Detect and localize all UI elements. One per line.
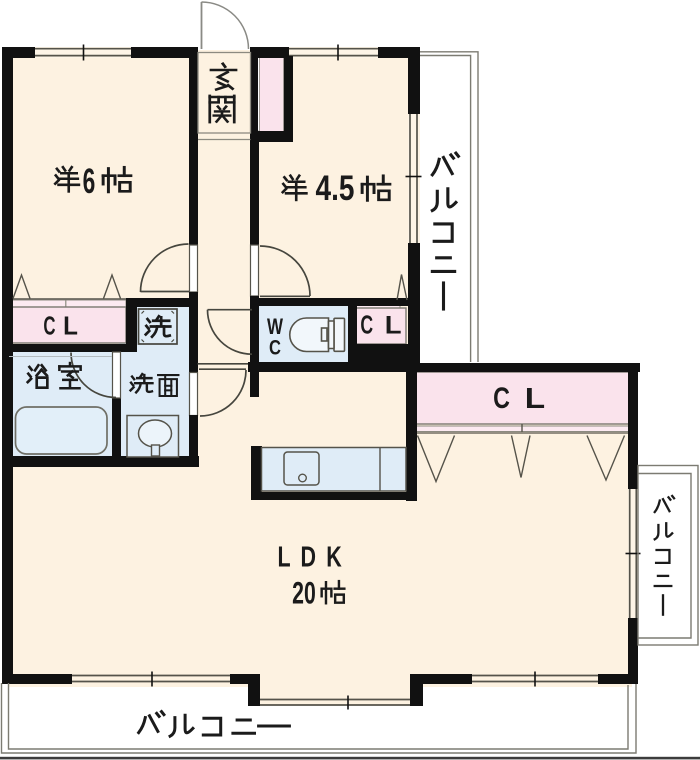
svg-text:C: C	[493, 381, 510, 415]
svg-text:20: 20	[292, 575, 316, 610]
svg-text:L: L	[277, 541, 290, 573]
svg-text:D: D	[300, 541, 315, 573]
svg-text:L: L	[63, 312, 78, 341]
svg-text:4.5: 4.5	[316, 168, 355, 208]
svg-text:C: C	[269, 337, 281, 360]
svg-text:K: K	[326, 541, 342, 573]
svg-text:L: L	[385, 311, 402, 340]
svg-text:6: 6	[83, 162, 96, 201]
svg-text:C: C	[43, 311, 55, 341]
svg-text:C: C	[360, 310, 373, 339]
svg-text:L: L	[525, 382, 545, 414]
